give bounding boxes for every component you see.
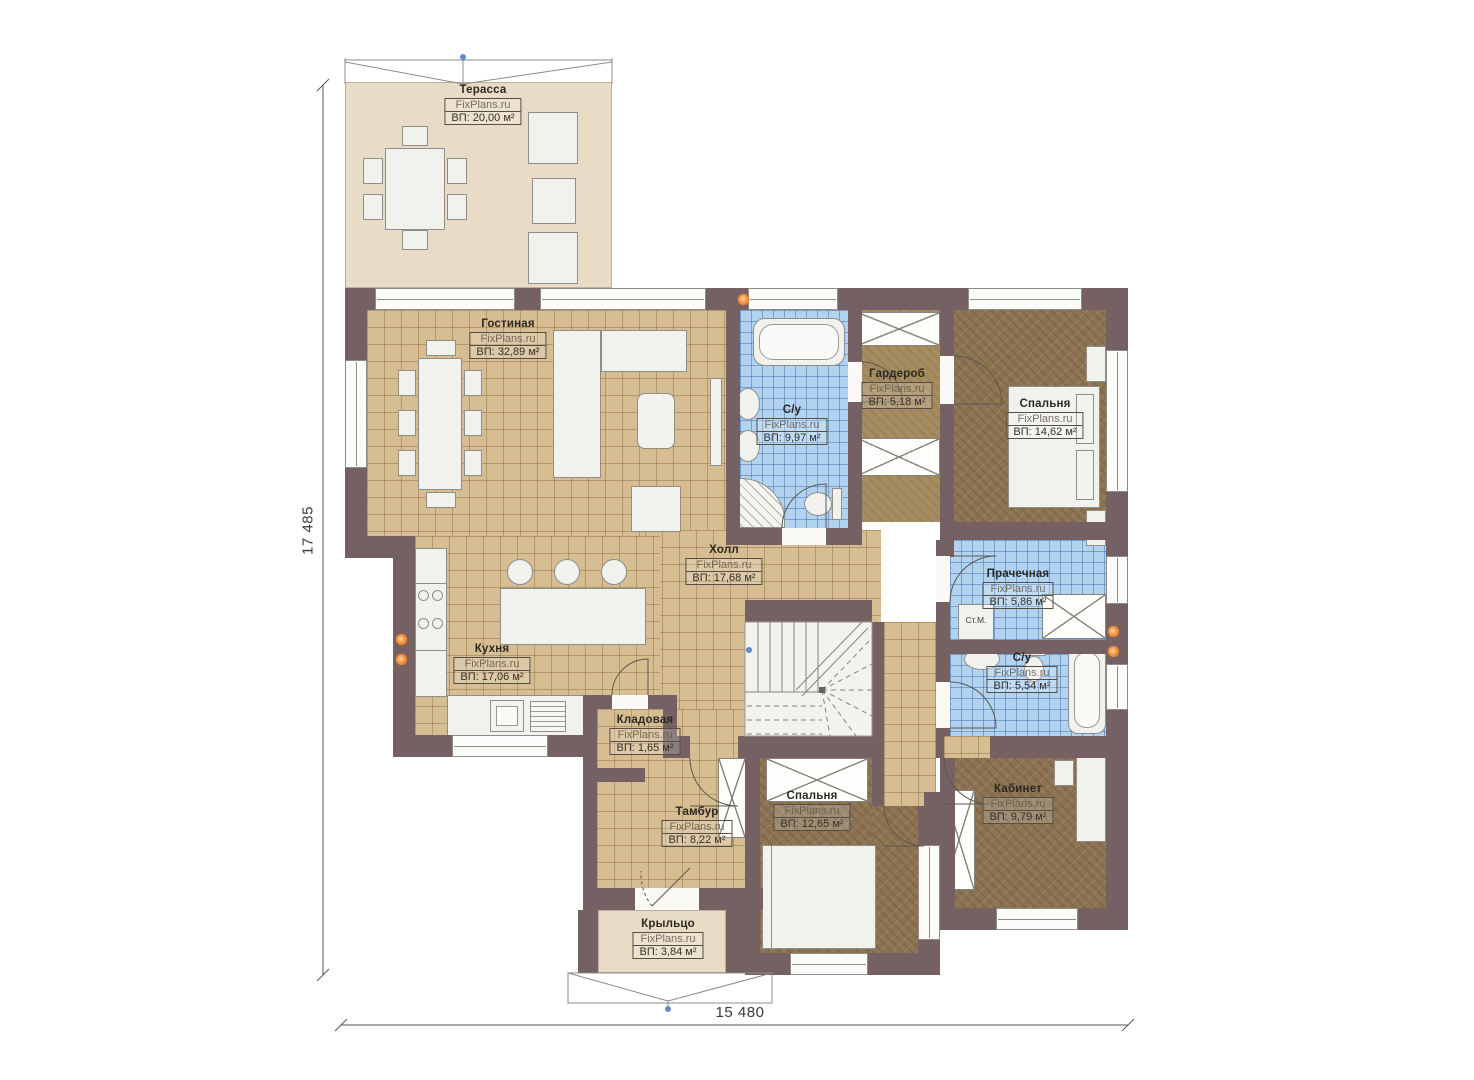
bathtub-2 <box>1068 646 1106 734</box>
kitchen-sink-basin <box>496 706 518 726</box>
bedroom1-pillow <box>1076 450 1094 500</box>
watermark: FixPlans.ru <box>983 798 1052 811</box>
watermark: FixPlans.ru <box>445 99 520 112</box>
door-gap-laundry <box>936 556 950 602</box>
bathtub-2-basin <box>1074 652 1100 728</box>
room-name: Крыльцо <box>632 918 703 930</box>
watermark: FixPlans.ru <box>983 583 1052 596</box>
kitchen-island <box>500 588 646 645</box>
room-name: Спальня <box>1006 398 1083 410</box>
utility-marker <box>738 294 749 305</box>
room-label-vestibule: Тамбур FixPlans.ruВП: 8,22 м² <box>661 806 732 848</box>
dining-chair <box>398 370 416 396</box>
stove-burner <box>418 618 429 629</box>
room-area: ВП: 17,68 м² <box>686 572 761 584</box>
dining-chair <box>464 370 482 396</box>
dining-chair <box>398 410 416 436</box>
room-area: ВП: 5,18 м² <box>862 396 931 408</box>
terrace-roof-outline <box>345 54 612 84</box>
dimension-height-label: 17 485 <box>300 501 317 561</box>
tv-console <box>710 378 722 466</box>
kitchen-sink <box>490 700 524 732</box>
room-name: С/у <box>756 404 827 416</box>
room-label-terrace: Терасса FixPlans.ruВП: 20,00 м² <box>444 84 521 126</box>
nightstand <box>1086 346 1106 382</box>
dining-chair <box>464 410 482 436</box>
window-living-top <box>540 288 706 310</box>
watermark: FixPlans.ru <box>774 805 849 818</box>
dining-chair <box>426 492 456 508</box>
room-area: ВП: 8,22 м² <box>662 834 731 846</box>
dining-table <box>418 358 462 490</box>
room-name: Кухня <box>453 643 530 655</box>
bedroom2-headboard <box>762 845 772 949</box>
room-area: ВП: 5,86 м² <box>983 596 1052 608</box>
wall-stair-corridor <box>872 622 884 792</box>
watermark: FixPlans.ru <box>470 333 545 346</box>
room-name: Тамбур <box>661 806 732 818</box>
bar-stool <box>507 559 533 585</box>
room-name: Терасса <box>444 84 521 96</box>
utility-marker <box>396 654 407 665</box>
wall-bedroom1-bottom <box>940 522 1128 540</box>
watermark: FixPlans.ru <box>1007 413 1082 426</box>
wardrobe-closet-bottom <box>858 438 940 476</box>
wall-bedroom2-left <box>745 736 760 975</box>
room-label-bathroom-2: С/у FixPlans.ruВП: 5,54 м² <box>986 652 1057 694</box>
window-bedroom2-bottom <box>790 953 868 975</box>
living-armchair <box>631 486 681 532</box>
sofa-horizontal <box>601 330 687 372</box>
window-bedroom1-right <box>1106 350 1128 492</box>
dining-chair <box>426 340 456 356</box>
terrace-armchair <box>528 112 578 164</box>
entrance-door-gap <box>635 888 699 910</box>
wall-hall-bottom-b <box>738 736 872 758</box>
room-label-kitchen: Кухня FixPlans.ruВП: 17,06 м² <box>453 643 530 685</box>
window-bath2-right <box>1106 664 1128 710</box>
sofa-vertical <box>553 330 601 478</box>
floor-plan: Ст.М. <box>0 0 1474 1080</box>
room-area: ВП: 20,00 м² <box>445 112 520 124</box>
room-label-storage: Кладовая FixPlans.ruВП: 1,65 м² <box>609 714 680 756</box>
room-area: ВП: 32,89 м² <box>470 346 545 358</box>
wall-bath-wardrobe <box>848 310 862 545</box>
terrace-chair <box>402 230 428 250</box>
room-label-living-room: Гостиная FixPlans.ruВП: 32,89 м² <box>469 318 546 360</box>
bathtub-main-basin <box>759 324 839 360</box>
room-area: ВП: 9,97 м² <box>757 432 826 444</box>
terrace-chair <box>363 158 383 184</box>
terrace-chair <box>447 194 467 220</box>
utility-marker <box>1108 646 1119 657</box>
terrace-armchair <box>528 232 578 284</box>
floor-hall <box>645 530 881 736</box>
room-name: Прачечная <box>982 568 1053 580</box>
dining-chair <box>464 450 482 476</box>
wall-storage-bottom <box>583 768 645 782</box>
dishwasher <box>530 701 566 732</box>
room-label-bedroom-2: Спальня FixPlans.ruВП: 12,65 м² <box>773 790 850 832</box>
coffee-table <box>637 393 675 449</box>
door-gap-bathroom-main <box>782 528 826 545</box>
utility-marker <box>396 634 407 645</box>
window-bath-top <box>748 288 838 310</box>
utility-marker <box>1108 626 1119 637</box>
wall-office-left <box>940 736 955 930</box>
room-area: ВП: 3,84 м² <box>633 946 702 958</box>
room-label-laundry: Прачечная FixPlans.ruВП: 5,86 м² <box>982 568 1053 610</box>
bar-stool <box>601 559 627 585</box>
toilet-main-bowl <box>804 492 832 516</box>
office-desk <box>1076 750 1106 842</box>
wall-below-corridor-b <box>924 792 940 806</box>
window-kitchen-bottom <box>452 735 548 757</box>
door-gap-storage <box>612 695 648 709</box>
wall-kitchen-left <box>393 536 415 757</box>
bar-stool <box>554 559 580 585</box>
office-chair <box>1054 760 1074 786</box>
room-label-hall: Холл FixPlans.ruВП: 17,68 м² <box>685 544 762 586</box>
window-living-left <box>345 360 367 468</box>
wall-bath-left <box>726 310 740 545</box>
watermark: FixPlans.ru <box>757 419 826 432</box>
window-bedroom2-right <box>918 845 940 940</box>
wall-stairs-top <box>745 600 872 622</box>
room-area: ВП: 9,79 м² <box>983 811 1052 823</box>
window-office-bottom <box>996 908 1078 930</box>
terrace-chair <box>363 194 383 220</box>
floor-patch-bedroom2-door <box>884 792 924 806</box>
bedroom2-bed <box>762 845 876 949</box>
terrace-door-window <box>375 288 515 310</box>
terrace-chair <box>402 126 428 146</box>
room-label-office: Кабинет FixPlans.ruВП: 9,79 м² <box>982 783 1053 825</box>
floor-patch-office-door <box>944 736 990 758</box>
watermark: FixPlans.ru <box>662 821 731 834</box>
dimension-width-label: 15 480 <box>695 1004 785 1021</box>
wardrobe-closet-top <box>858 312 940 346</box>
floor-bedroom-2-ext <box>872 806 918 953</box>
stove-burner <box>432 618 443 629</box>
terrace-chair <box>447 158 467 184</box>
wall-porch-pier-right <box>726 910 746 973</box>
watermark: FixPlans.ru <box>633 933 702 946</box>
room-name: С/у <box>986 652 1057 664</box>
wall-bath2-bottom-a <box>936 736 944 758</box>
watermark: FixPlans.ru <box>862 383 931 396</box>
wall-vestibule-left <box>583 695 597 910</box>
dining-chair <box>398 450 416 476</box>
room-area: ВП: 1,65 м² <box>610 742 679 754</box>
room-area: ВП: 5,54 м² <box>987 680 1056 692</box>
room-label-wardrobe: Гардероб FixPlans.ruВП: 5,18 м² <box>861 368 932 410</box>
toilet-main-tank <box>832 488 842 520</box>
window-bedroom1-top <box>968 288 1082 310</box>
door-gap-bedroom1 <box>940 356 954 404</box>
room-area: ВП: 17,06 м² <box>454 671 529 683</box>
room-label-porch: Крыльцо FixPlans.ruВП: 3,84 м² <box>632 918 703 960</box>
watermark: FixPlans.ru <box>686 559 761 572</box>
watermark: FixPlans.ru <box>987 667 1056 680</box>
window-laundry-right <box>1106 556 1128 604</box>
room-name: Спальня <box>773 790 850 802</box>
terrace-table <box>385 148 445 230</box>
wall-wardrobe-bedroom <box>940 310 954 557</box>
floor-corridor <box>884 622 936 792</box>
room-name: Кабинет <box>982 783 1053 795</box>
door-gap-wardrobe <box>848 362 862 402</box>
room-name: Гостиная <box>469 318 546 330</box>
wall-porch-pier-left <box>578 910 598 973</box>
room-name: Гардероб <box>861 368 932 380</box>
washing-machine-label: Ст.М. <box>958 615 994 625</box>
stove-burner <box>418 590 429 601</box>
room-label-bedroom-1: Спальня FixPlans.ruВП: 14,62 м² <box>1006 398 1083 440</box>
stove-burner <box>432 590 443 601</box>
room-label-bathroom-main: С/у FixPlans.ruВП: 9,97 м² <box>756 404 827 446</box>
wall-below-corridor-a <box>872 792 884 806</box>
watermark: FixPlans.ru <box>610 729 679 742</box>
room-name: Холл <box>685 544 762 556</box>
terrace-armchair <box>532 178 576 224</box>
watermark: FixPlans.ru <box>454 658 529 671</box>
room-area: ВП: 12,65 м² <box>774 818 849 830</box>
door-gap-bathroom2 <box>936 682 950 728</box>
room-name: Кладовая <box>609 714 680 726</box>
bathtub-main <box>753 318 845 366</box>
room-area: ВП: 14,62 м² <box>1007 426 1082 438</box>
